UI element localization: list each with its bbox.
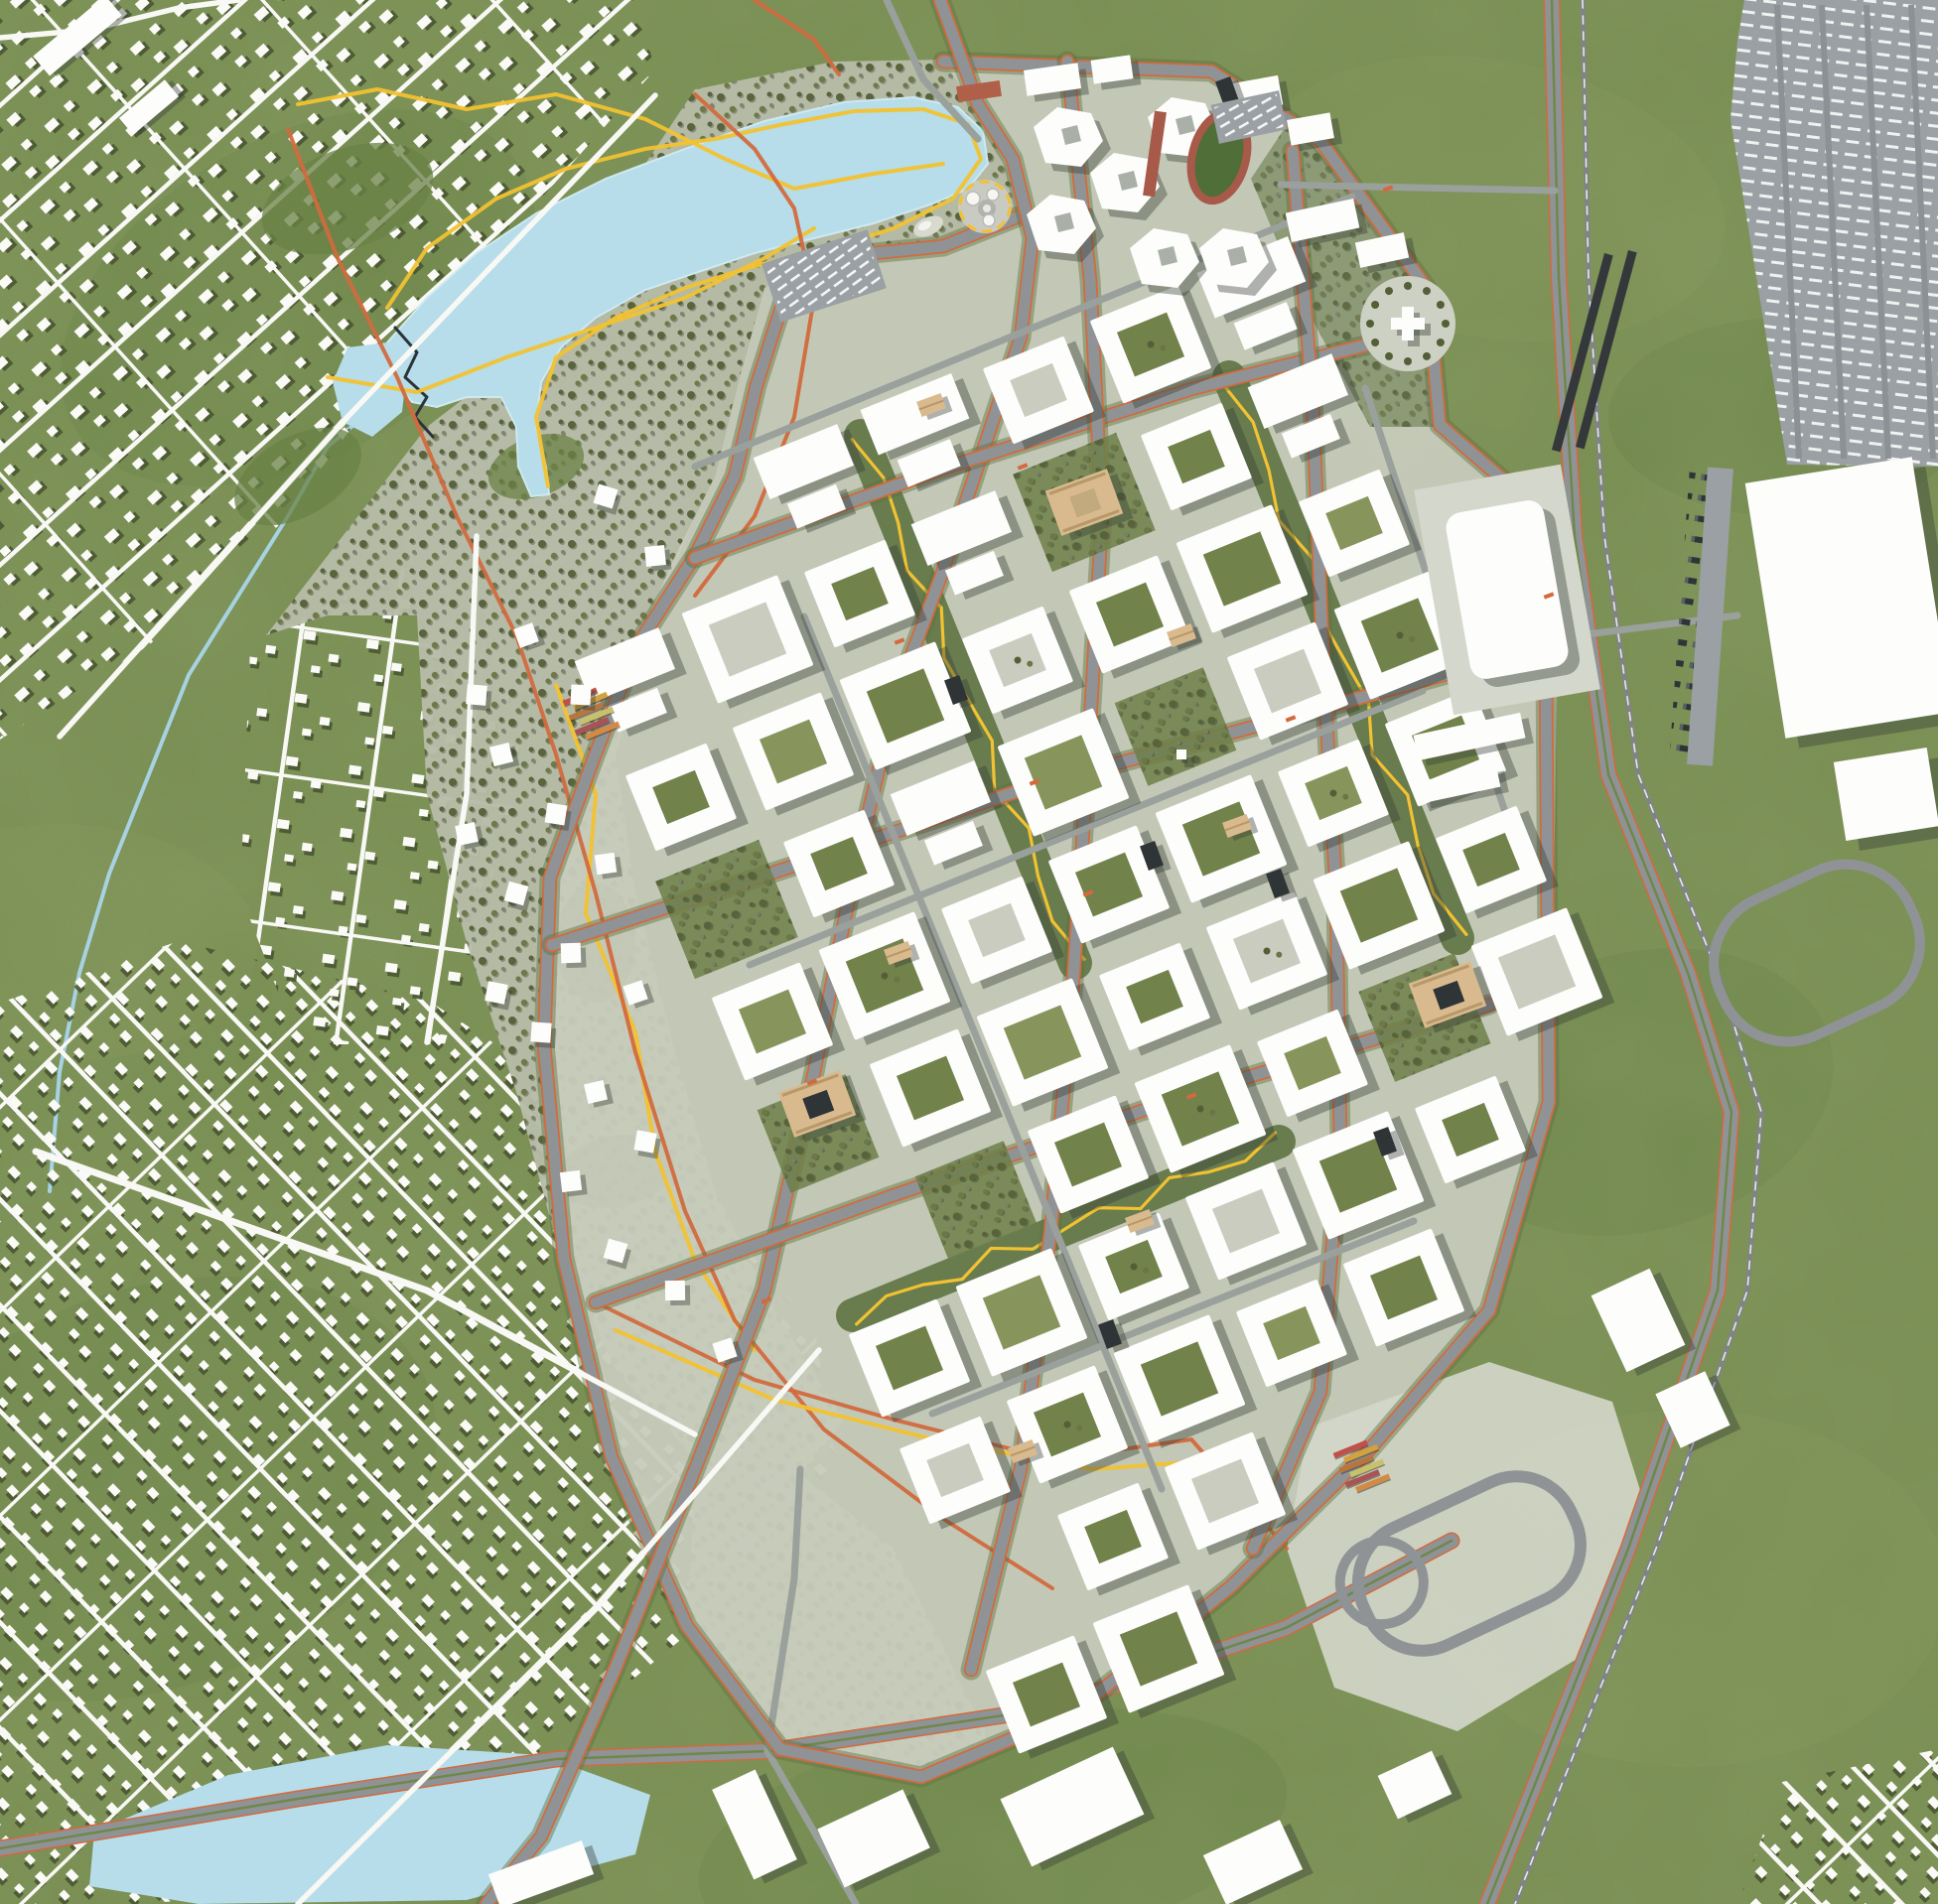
forest-point-house — [455, 822, 479, 846]
forest-point-house — [595, 853, 618, 876]
forest-point-house — [560, 1170, 582, 1192]
forest-point-house — [665, 1281, 685, 1300]
forest-point-house — [561, 943, 582, 964]
industrial-building — [1177, 749, 1186, 759]
forest-point-house — [545, 803, 568, 826]
forest-point-house — [530, 1021, 551, 1042]
forest-point-house — [644, 545, 666, 567]
forest-point-house — [484, 981, 507, 1004]
forest-point-house — [633, 1130, 656, 1153]
warehouse — [1834, 748, 1938, 841]
forest-point-house — [466, 684, 487, 706]
forest-point-house — [570, 684, 591, 705]
map-canvas — [0, 0, 1938, 1904]
masterplan-map — [0, 0, 1938, 1904]
